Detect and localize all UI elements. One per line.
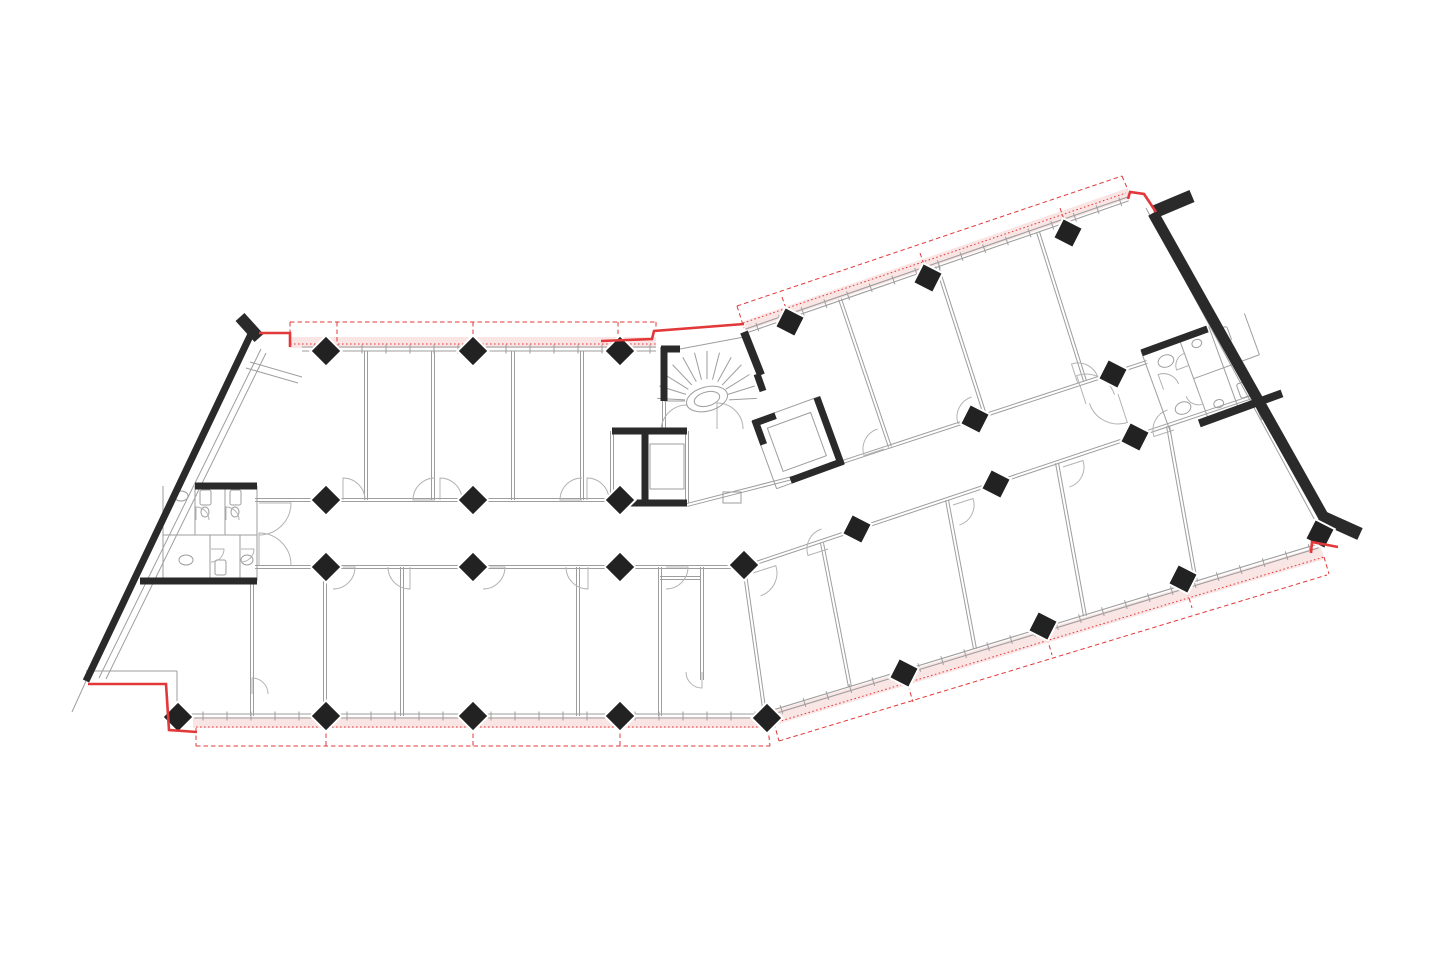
door-swing: [953, 499, 974, 526]
partition-wall: [687, 475, 800, 504]
structural-column: [728, 549, 759, 580]
stair-tread: [729, 398, 757, 399]
floor-plan-page: Architectural floor plan drawing of a be…: [0, 0, 1440, 960]
facade-window-lines: [191, 197, 1319, 720]
detail-line: [246, 368, 298, 383]
stair-tread: [694, 353, 701, 380]
wc-door-swing: [1172, 353, 1189, 370]
partition-wall: [1169, 426, 1197, 582]
red-solid-facade-line: [259, 333, 290, 347]
red-dashed-lines: [196, 176, 1329, 746]
stair-tread: [665, 375, 689, 390]
partition-wall: [841, 299, 891, 447]
wc-door-swing: [1158, 369, 1179, 390]
structural-columns: [162, 218, 1334, 733]
elevator-wall: [791, 461, 844, 480]
sink-fixture: [1213, 398, 1225, 409]
wc-wall: [1142, 329, 1208, 353]
structural-column: [960, 404, 990, 434]
red-dashed-line: [1122, 176, 1128, 190]
stair-well: [684, 382, 731, 416]
structural-column: [457, 484, 488, 515]
door-swing: [252, 678, 268, 694]
red-solid-facade-lines: [88, 192, 1338, 732]
partition-wall: [821, 543, 849, 687]
door-swing: [686, 672, 702, 688]
facade-line: [745, 197, 1127, 329]
fixture-rects: [650, 444, 741, 503]
sink-fixture: [179, 555, 193, 565]
facade-line: [747, 201, 1129, 333]
detail-line: [72, 681, 86, 712]
partition-wall: [1167, 426, 1195, 582]
stair-tread: [726, 375, 750, 390]
door-swing: [753, 566, 777, 596]
stair-tread: [713, 353, 720, 380]
rotated-elevator: [752, 396, 844, 488]
partition-wall: [948, 500, 976, 649]
sink-fixture: [1156, 353, 1175, 370]
door-swing: [259, 503, 291, 535]
partition-wall: [1037, 232, 1084, 381]
red-dashed-line: [1324, 557, 1329, 574]
sink-fixture: [1191, 338, 1203, 349]
structural-column: [1098, 359, 1128, 389]
structural-wall: [1153, 213, 1327, 523]
structural-column: [310, 484, 341, 515]
door-swing: [259, 533, 291, 565]
door-swing: [717, 403, 743, 429]
door-swing: [560, 478, 582, 500]
elevator-car: [767, 412, 826, 471]
stair-tread: [728, 386, 755, 394]
door-swing: [1090, 394, 1128, 424]
wc-partition: [1141, 351, 1171, 434]
partition-wall: [687, 477, 800, 506]
structural-column: [604, 551, 635, 582]
red-solid-facade-line: [1128, 192, 1156, 212]
partition-wall: [946, 500, 974, 649]
partition-wall: [936, 266, 984, 415]
toilet-fixture: [215, 560, 226, 575]
detail-line: [99, 349, 261, 678]
wc-door-swing: [226, 507, 239, 520]
partition-wall: [745, 567, 766, 715]
structural-column: [981, 469, 1011, 499]
red-dashed-line: [779, 575, 1327, 741]
partition-wall: [743, 567, 764, 715]
door-swing: [388, 567, 410, 589]
door-swing: [343, 478, 365, 500]
door-swing: [661, 405, 687, 431]
structural-column: [1120, 422, 1150, 452]
structural-column: [842, 514, 872, 544]
stair-core: [657, 351, 757, 416]
wc-partition: [1244, 313, 1259, 354]
structural-wall: [757, 374, 763, 391]
partition-wall: [839, 299, 889, 447]
toilet-fixture: [230, 490, 241, 505]
structural-column: [457, 551, 488, 582]
door-swing: [1063, 461, 1084, 488]
red-dotted-lines: [196, 193, 1324, 727]
wc-door-swing: [196, 507, 209, 520]
thin-detail-lines: [72, 208, 1318, 712]
structural-column: [604, 484, 635, 515]
wc-partition: [1179, 337, 1209, 420]
floor-plan-svg: Architectural floor plan drawing of a be…: [0, 0, 1440, 960]
structural-wall: [1154, 196, 1192, 212]
door-swing: [587, 478, 609, 500]
structural-wall: [744, 332, 761, 375]
toilet-fixture: [200, 490, 211, 505]
structural-column: [310, 551, 341, 582]
partition-wall: [938, 266, 986, 415]
partition-wall: [823, 543, 851, 687]
elevator-wall: [817, 397, 842, 465]
rotated-elevator-core: [752, 396, 844, 488]
detail-rect: [650, 444, 684, 489]
structural-column: [751, 702, 782, 733]
pink-facade-bands: [193, 188, 1325, 728]
partition-wall: [1056, 463, 1084, 616]
partition-wall: [1039, 232, 1086, 381]
detail-line: [106, 353, 266, 679]
door-swing: [440, 478, 462, 500]
wc-door-swing: [1186, 392, 1203, 409]
door-swing: [666, 567, 688, 589]
